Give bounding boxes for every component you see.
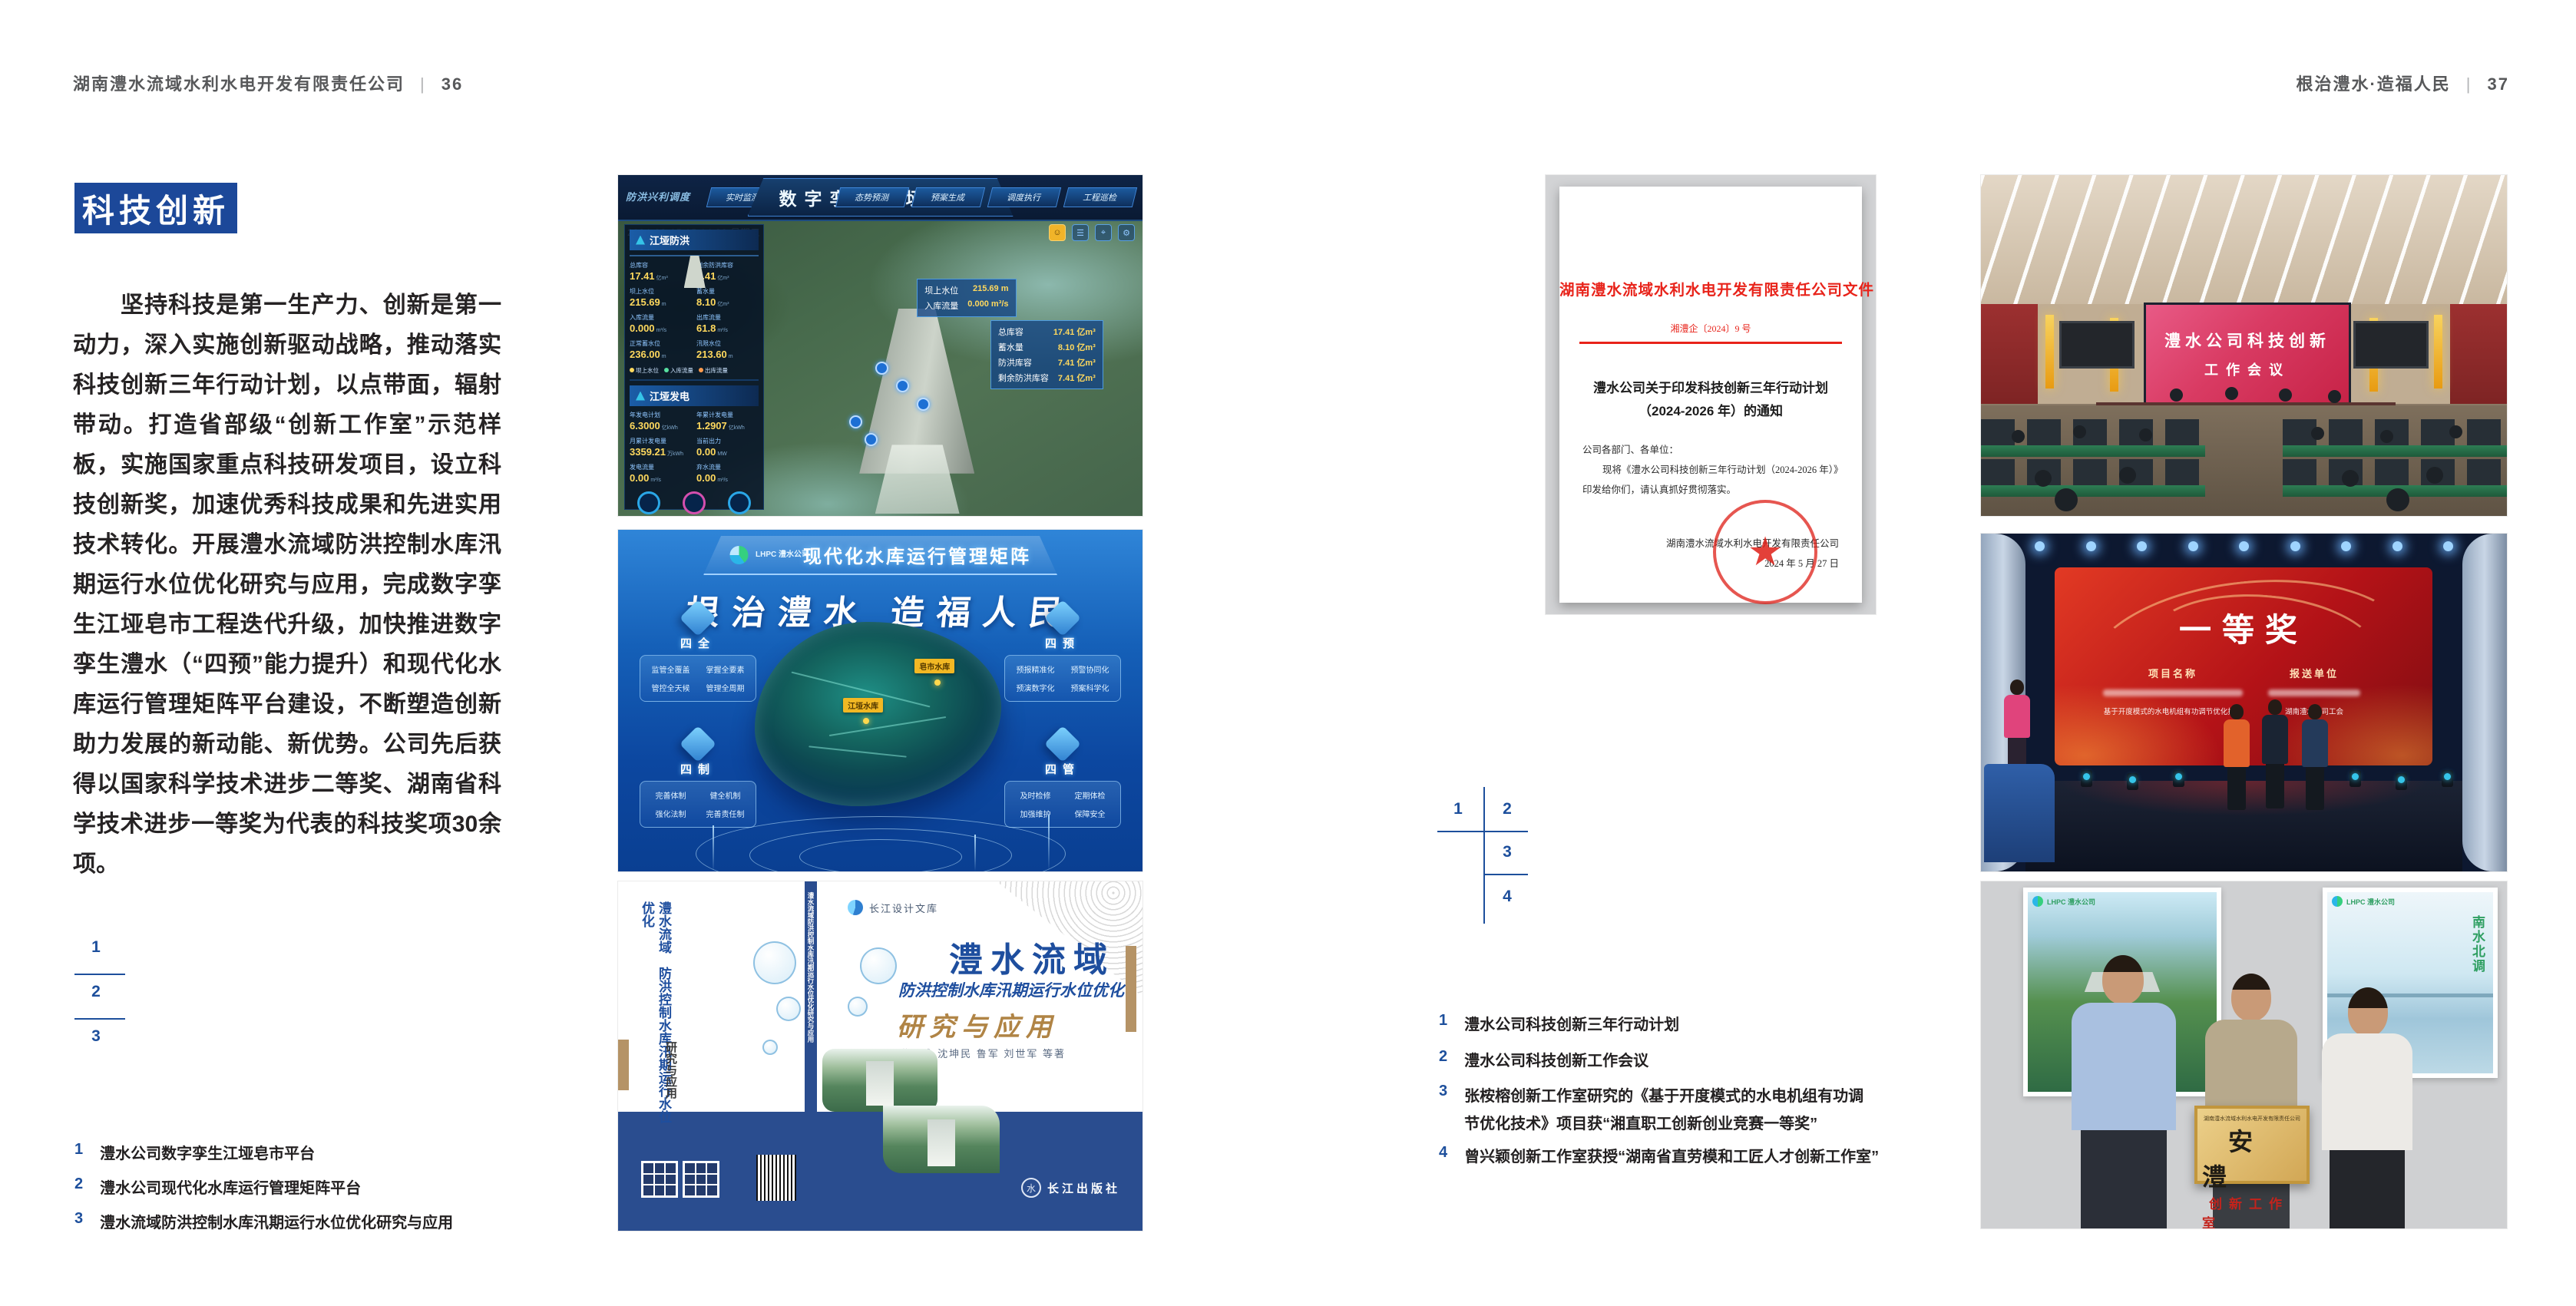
publisher-logo-icon: 水 <box>1021 1178 1041 1198</box>
gauge-icon <box>683 491 706 514</box>
caption-number: 2 <box>1439 1048 1447 1070</box>
red-rule <box>1579 342 1842 344</box>
settings-icon: ⚙ <box>1118 224 1135 241</box>
audience-row <box>2283 459 2507 485</box>
blurred-text-line <box>2103 689 2243 696</box>
locate-icon: ⌖ <box>1095 224 1112 241</box>
brochure-spread: 湖南澧水流域水利水电开发有限责任公司|36 根治澧水·造福人民|37 科技创新 … <box>0 0 2576 1306</box>
stat-cell: 入库流量0.000m³/s <box>630 313 692 336</box>
header-divider: | <box>420 74 426 94</box>
host-podium <box>1984 764 2055 862</box>
gauge-icon <box>728 491 751 514</box>
bubble-art <box>776 997 801 1021</box>
stage-light-fixture <box>2081 770 2092 787</box>
figure-index-vline <box>1483 787 1485 924</box>
presenter-suit <box>2262 699 2288 808</box>
gate-marker-icon <box>917 398 930 411</box>
caption-row: 2 澧水公司科技创新工作会议 <box>1439 1048 1648 1070</box>
chart-legend: 坝上水位 入库流量 出库流量 <box>630 366 759 375</box>
stat-cell: 剩余防洪库容7.41亿m³ <box>696 261 759 283</box>
figure-index-hline <box>1437 831 1528 832</box>
speaker-head <box>2170 388 2183 402</box>
caption-number: 1 <box>1439 1012 1447 1034</box>
layers-icon: ☰ <box>1072 224 1089 241</box>
figure-index-1: 1 <box>73 938 119 957</box>
caption-text: 澧水公司科技创新工作会议 <box>1464 1048 1648 1070</box>
stage-light-fixture <box>2349 770 2361 787</box>
document-body: 公司各部门、各单位： 现将《澧水公司科技创新三年行动计划（2024-2026 年… <box>1582 440 1839 500</box>
section-title: 科技创新 <box>74 183 237 233</box>
wall-light-bar <box>2045 315 2054 388</box>
caption-text: 张桉榕创新工作室研究的《基于开度模式的水电机组有功调节优化技术》项目获“湘直职工… <box>1464 1083 1871 1138</box>
lhpc-logo-icon <box>2032 896 2043 907</box>
publisher-block: 水 长江出版社 <box>1021 1178 1120 1198</box>
stat-cell: 汛限水位213.60m <box>696 339 759 362</box>
speaker-head <box>2225 387 2238 400</box>
figure-index-2: 2 <box>73 983 119 1001</box>
water-level-chart <box>630 379 759 381</box>
panel-siguan: 四管 及时检修 定期体检 加强维护 保障安全 <box>1004 731 1121 828</box>
audience-head <box>2426 467 2443 484</box>
dashboard-tabs-right: 态势预测 预案生成 调度执行 工程巡检 <box>838 187 1135 207</box>
light-beam <box>1048 815 1050 871</box>
tab-plan-generation: 预案生成 <box>911 187 985 207</box>
stat-cell: 出库流量61.8m³/s <box>696 313 759 336</box>
caption-number: 4 <box>1439 1144 1447 1166</box>
flood-panel: 江垭防洪 总库容17.41亿m³ 剩余防洪库容7.41亿m³ 坝上水位215.6… <box>624 224 764 510</box>
stat-cell: 正常蓄水位236.00m <box>630 339 692 362</box>
caption-number: 3 <box>74 1210 83 1232</box>
photo-award-ceremony: 一等奖 项目名称 基于开度模式的水电机组有功调节优化技术 报送单位 湖南澧水公司… <box>1981 534 2507 871</box>
tab-project-inspection: 工程巡检 <box>1063 187 1137 207</box>
audience-head <box>2386 488 2409 511</box>
document-title: 澧水公司关于印发科技创新三年行动计划 （2024-2026 年）的通知 <box>1559 377 1862 423</box>
plaque-subtitle: 创新工作室 <box>2202 1193 2302 1228</box>
stat-cell: 月累计发电量3359.21万kWh <box>630 437 692 459</box>
figure-index-4: 4 <box>1486 888 1528 906</box>
reservoir-pin-icon <box>863 718 869 724</box>
gold-tab <box>1126 946 1136 1032</box>
stat-cell: 弃水流量0.00m³/s <box>696 463 759 485</box>
dam-photo-front <box>822 1049 937 1112</box>
caption-text: 澧水公司数字孪生江垭皂市平台 <box>100 1141 315 1163</box>
watershed-map: 江垭水库 皂市水库 <box>755 622 1001 806</box>
screen-title-line2: 工作会议 <box>2204 359 2290 379</box>
storage-infochip: 总库容17.41 亿m³ 蓄水量8.10 亿m³ 防洪库容7.41 亿m³ 剩余… <box>990 320 1103 389</box>
plaque-name: 安澧 <box>2202 1122 2302 1193</box>
document-org-banner: 湖南澧水流域水利水电开发有限责任公司文件 <box>1559 277 1862 299</box>
series-logo-icon <box>848 900 863 915</box>
plaque-org-line: 湖南澧水流域水利水电开发有限责任公司 <box>2204 1115 2300 1122</box>
audience-head <box>2311 427 2324 440</box>
figure-official-document: 湖南澧水流域水利水电开发有限责任公司文件 湘澧企〔2024〕9 号 澧水公司关于… <box>1546 175 1876 614</box>
dashboard-toolbar-icons: ☺ ☰ ⌖ ⚙ <box>1049 224 1135 241</box>
body-paragraph: 坚持科技是第一生产力、创新是第一动力，深入实施创新驱动战略，推动落实科技创新三年… <box>73 286 501 884</box>
stat-cell: 蓄水量8.10亿m³ <box>696 287 759 309</box>
platform-title: 现代化水库运行管理矩阵 <box>803 541 1031 568</box>
caption-row: 1 澧水公司数字孪生江垭皂市平台 <box>74 1141 315 1163</box>
stage-light-fixture <box>2396 773 2407 790</box>
document-number: 湘澧企〔2024〕9 号 <box>1559 322 1862 335</box>
gate-marker-icon <box>849 415 862 428</box>
panel-siyu: 四预 预报精准化 预警协同化 预演数字化 预案科学化 <box>1004 605 1121 702</box>
caption-text: 曾兴颖创新工作室获授“湖南省直劳模和工匠人才创新工作室” <box>1464 1144 1879 1166</box>
caption-number: 2 <box>74 1175 83 1198</box>
bubble-art <box>848 997 868 1017</box>
figure-index-3: 3 <box>1486 843 1528 861</box>
wall-red-panel <box>1981 304 2038 404</box>
award-title: 一等奖 <box>2055 604 2432 651</box>
column-header: 报送单位 <box>2290 666 2339 680</box>
figure-index-3: 3 <box>73 1027 119 1046</box>
figure-index-2: 2 <box>1486 800 1528 818</box>
desk-cloth-strip <box>2283 445 2507 457</box>
platform-header: LHPC 澧水公司 现代化水库运行管理矩阵 <box>703 536 1057 575</box>
qr-code <box>683 1161 719 1198</box>
publisher-name: 长江出版社 <box>1047 1180 1120 1196</box>
stat-cell: 总库容17.41亿m³ <box>630 261 692 283</box>
tab-situation-forecast: 态势预测 <box>835 187 909 207</box>
meeting-ceiling-lights <box>1981 175 2507 304</box>
photo-innovation-meeting: 澧水公司科技创新 工作会议 <box>1981 175 2507 516</box>
book-title-main: 澧水流域 <box>949 932 1115 981</box>
dam-thumbnail <box>630 255 759 256</box>
stage-light-fixture <box>2442 770 2453 787</box>
audience-head <box>2055 488 2078 511</box>
caption-row: 3 澧水流域防洪控制水库汛期运行水位优化研究与应用 <box>74 1210 453 1232</box>
power-panel-header: 江垭发电 <box>630 385 759 406</box>
company-logo-icon <box>729 546 748 564</box>
caption-text: 澧水公司现代化水库运行管理矩阵平台 <box>100 1175 361 1198</box>
qr-code <box>641 1161 678 1198</box>
poster-logo: LHPC 澧水公司 <box>2032 896 2095 907</box>
left-page-header: 湖南澧水流域水利水电开发有限责任公司|36 <box>73 71 463 95</box>
panel-icon <box>680 726 716 762</box>
figure-matrix-platform: LHPC 澧水公司 现代化水库运行管理矩阵 根治澧水 造福人民 江垭水库 皂市水… <box>618 530 1143 871</box>
light-beam <box>713 825 714 871</box>
audience-head <box>2012 430 2025 443</box>
caption-text: 澧水流域防洪控制水库汛期运行水位优化研究与应用 <box>100 1210 453 1232</box>
dam-photo-band <box>883 1106 1000 1173</box>
caption-row: 1 澧水公司科技创新三年行动计划 <box>1439 1012 1679 1034</box>
figure-index-hline <box>1483 874 1528 875</box>
blurred-text-line <box>2268 689 2360 696</box>
bubble-art <box>762 1040 778 1055</box>
audience-head <box>2119 467 2136 484</box>
bubble-art <box>860 947 897 984</box>
panel-logo-icon <box>636 236 645 245</box>
dispatch-mode-label: 防洪兴利调度 <box>626 189 690 203</box>
dashboard-header: 防洪兴利调度 实时监测 洪水预报 防洪预警 数字孪生江垭皂市 态势预测 预案生成… <box>618 175 1143 221</box>
river-line <box>809 746 907 758</box>
panel-logo-icon <box>636 392 645 401</box>
figure-index-1: 1 <box>1437 800 1479 818</box>
book-title-sub: 防洪控制水库汛期运行水位优化 <box>898 978 1124 1001</box>
flood-panel-header: 江垭防洪 <box>630 230 759 250</box>
caption-row: 3 张桉榕创新工作室研究的《基于开度模式的水电机组有功调节优化技术》项目获“湘直… <box>1439 1083 1871 1138</box>
gate-marker-icon <box>875 362 888 375</box>
back-cover-subtitle: 研究与应用 <box>663 1041 679 1133</box>
header-divider: | <box>2466 74 2472 94</box>
awardee-navy <box>2302 704 2328 810</box>
right-page-number: 37 <box>2488 74 2509 94</box>
series-badge: 长江设计文库 <box>848 900 938 915</box>
desk-cloth-strip <box>1981 485 2205 497</box>
document-salutation: 公司各部门、各单位： <box>1582 440 1839 460</box>
host-figure <box>2004 679 2030 769</box>
side-tv-screen <box>2353 321 2429 369</box>
stat-cell: 当前出力0.00MW <box>696 437 759 459</box>
document-body-text: 现将《澧水公司科技创新三年行动计划（2024-2026 年）》印发给你们，请认真… <box>1582 460 1839 500</box>
map-label-zaoshi: 皂市水库 <box>914 659 954 673</box>
column-header: 项目名称 <box>2148 666 2197 680</box>
river-line <box>829 716 946 736</box>
gauge-icon <box>637 491 660 514</box>
photo-studio-group: LHPC 澧水公司 LHPC 澧水公司 南水北调 <box>1981 881 2507 1228</box>
wall-red-panel <box>2450 304 2507 404</box>
audience-head <box>2380 430 2393 443</box>
stage-light-fixture <box>2127 773 2138 790</box>
spine-title: 澧水流域防洪控制水库汛期运行水位优化研究与应用 <box>806 892 815 1043</box>
slogan-text: 根治澧水·造福人民 <box>2296 74 2450 94</box>
stat-cell: 发电流量0.00m³/s <box>630 463 692 485</box>
stage-spotlights <box>2035 541 2453 551</box>
water-level-infochip: 坝上水位215.69 m 入库流量0.000 m³/s <box>917 279 1016 317</box>
bubble-art <box>753 941 796 984</box>
company-name: 湖南澧水流域水利水电开发有限责任公司 <box>73 74 405 94</box>
speaker-head <box>2279 388 2292 402</box>
audience-head <box>2035 470 2052 487</box>
panel-sizhi: 四制 完善体制 健全机制 强化法制 完善责任制 <box>640 731 756 828</box>
ripple-ring <box>799 839 962 871</box>
audience-head <box>2139 428 2152 441</box>
figure-digital-twin-dashboard: 坝上水位215.69 m 入库流量0.000 m³/s 总库容17.41 亿m³… <box>618 175 1143 516</box>
panel-icon <box>1044 726 1081 762</box>
panel-siquan: 四全 监管全覆盖 掌握全要素 管控全天候 管理全周期 <box>640 605 756 702</box>
platform-brand: LHPC 澧水公司 <box>756 551 795 559</box>
turbine-gauges <box>630 491 759 514</box>
dam-shape <box>866 1061 894 1105</box>
poster-calligraphy: 南水北调 <box>2468 915 2487 974</box>
lhpc-logo-icon <box>2332 896 2343 907</box>
dam-shape <box>928 1119 955 1167</box>
panel-icon <box>680 600 716 636</box>
book-title-tail: 研究与应用 <box>897 1006 1058 1043</box>
left-page-number: 36 <box>441 74 463 94</box>
stage-side-panel <box>2462 534 2507 871</box>
figure-book-cover: 澧水流域 防洪控制水库汛期运行水位优化 研究与应用 澧水流域防洪控制水库汛期运行… <box>618 881 1143 1231</box>
caption-number: 3 <box>1439 1083 1447 1138</box>
light-beam <box>974 835 976 871</box>
poster-logo: LHPC 澧水公司 <box>2332 896 2395 907</box>
barcode <box>756 1155 796 1201</box>
audience-head <box>2342 470 2359 487</box>
speaker-head <box>2328 390 2341 403</box>
awardee-orange <box>2224 704 2250 810</box>
caption-row: 2 澧水公司现代化水库运行管理矩阵平台 <box>74 1175 361 1198</box>
figure-index-divider <box>74 974 125 975</box>
caption-row: 4 曾兴颖创新工作室获授“湖南省直劳模和工匠人才创新工作室” <box>1439 1144 1879 1166</box>
user-icon: ☺ <box>1049 224 1066 241</box>
power-stats-grid: 年发电计划6.3000亿kWh 年累计发电量1.2907亿kWh 月累计发电量3… <box>630 411 759 485</box>
panel-icon <box>1044 600 1081 636</box>
book-spine: 澧水流域防洪控制水库汛期运行水位优化研究与应用 <box>805 881 817 1231</box>
stat-cell: 年累计发电量1.2907亿kWh <box>696 411 759 433</box>
right-page-header: 根治澧水·造福人民|37 <box>2296 71 2509 95</box>
map-label-jiangya: 江垭水库 <box>843 698 883 713</box>
audience-head <box>2073 425 2086 438</box>
stage-light-fixture <box>2173 770 2184 787</box>
studio-plaque: 湖南澧水流域水利水电开发有限责任公司 安澧 创新工作室 <box>2194 1106 2310 1184</box>
tab-dispatch-execution: 调度执行 <box>987 187 1061 207</box>
stat-cell: 年发电计划6.3000亿kWh <box>630 411 692 433</box>
wall-light-bar <box>2434 315 2442 388</box>
gold-tab <box>618 1040 629 1090</box>
screen-title-line1: 澧水公司科技创新 <box>2164 329 2330 352</box>
reservoir-pin-icon <box>934 679 941 686</box>
red-seal: ★ <box>1713 500 1817 604</box>
stat-cell: 坝上水位215.69m <box>630 287 692 309</box>
caption-number: 1 <box>74 1141 83 1163</box>
gate-marker-icon <box>865 433 878 446</box>
audience-head <box>2449 425 2462 438</box>
desk-cloth-strip <box>1981 445 2205 457</box>
caption-text: 澧水公司科技创新三年行动计划 <box>1464 1012 1679 1034</box>
audience-row <box>1981 459 2205 485</box>
figure-index-divider <box>74 1018 125 1020</box>
side-tv-screen <box>2059 321 2135 369</box>
document-paper: 湖南澧水流域水利水电开发有限责任公司文件 湘澧企〔2024〕9 号 澧水公司关于… <box>1559 187 1862 603</box>
award-project-text: 基于开度模式的水电机组有功调节优化技术 <box>2104 706 2243 716</box>
